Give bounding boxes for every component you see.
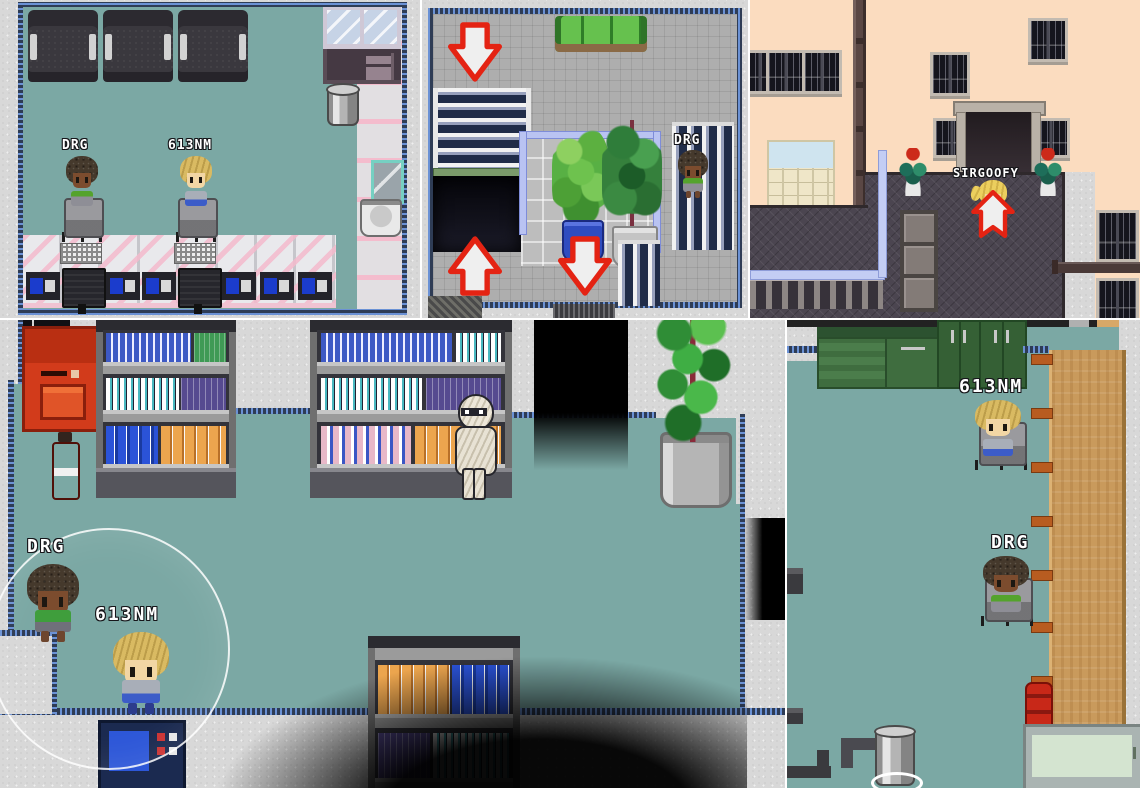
character-613nm[interactable] xyxy=(112,632,170,714)
window xyxy=(1096,278,1139,318)
trash-can-rim xyxy=(871,772,923,788)
green-couch xyxy=(555,16,647,52)
mummy-eye-band xyxy=(461,408,487,416)
flower-planter xyxy=(1031,148,1065,196)
torso xyxy=(983,439,1013,456)
wall-block xyxy=(236,320,310,414)
wall-pipe xyxy=(787,708,803,724)
monitor xyxy=(178,268,222,308)
shelf-row xyxy=(103,330,229,362)
potted-plant-leaves xyxy=(602,120,662,232)
arrow-up-icon[interactable] xyxy=(448,236,502,296)
wall-trim xyxy=(787,346,817,353)
character-label: 613NM xyxy=(959,376,1023,397)
character-label: DRG xyxy=(674,133,700,148)
window xyxy=(1096,210,1139,262)
keyboard xyxy=(174,243,216,264)
face xyxy=(187,173,204,188)
mirror xyxy=(371,160,404,204)
character-label: DRG xyxy=(27,536,66,557)
leg xyxy=(57,631,65,642)
character-drg[interactable] xyxy=(678,150,708,198)
crate xyxy=(900,274,938,312)
face xyxy=(994,575,1019,592)
shelf-row xyxy=(317,330,505,362)
glass-cabinet-pane xyxy=(364,10,397,44)
darkness-gradient xyxy=(200,650,747,788)
cabinet-drawers xyxy=(817,337,889,389)
pipe-elbow xyxy=(841,738,853,768)
desk-drawers xyxy=(366,53,394,80)
control-panel[interactable] xyxy=(26,272,60,300)
monitor xyxy=(62,268,106,308)
extinguisher-nozzle xyxy=(58,432,72,442)
arrow-down-icon[interactable] xyxy=(558,236,612,296)
panel-building-exterior: SIRGOOFY xyxy=(750,0,1140,318)
arrow-down-icon[interactable] xyxy=(448,22,502,82)
monitor-stand xyxy=(78,304,86,314)
folding-doors xyxy=(767,140,835,210)
wall-trim xyxy=(1023,346,1049,353)
character-label: DRG xyxy=(991,532,1030,553)
window xyxy=(1028,18,1068,62)
leg xyxy=(695,191,700,198)
sink xyxy=(360,199,402,237)
monitor-stand xyxy=(194,304,202,314)
panel-stair-hall: DRG xyxy=(422,0,748,318)
shelf-row xyxy=(103,374,229,410)
stone-column xyxy=(1062,172,1095,318)
character-label: DRG xyxy=(62,138,88,153)
dark-doorway[interactable] xyxy=(534,320,628,470)
panel-kitchen-office: 613NM DRG xyxy=(787,320,1140,788)
pipe-rail xyxy=(750,270,885,280)
pipe-cap xyxy=(1052,260,1058,274)
shelf-base xyxy=(96,468,236,498)
table-rung xyxy=(1031,408,1053,419)
table-rung xyxy=(1031,516,1053,527)
torso xyxy=(35,610,71,632)
control-panel[interactable] xyxy=(298,272,332,300)
pipe-rail xyxy=(878,150,887,278)
walkway-railing xyxy=(750,278,883,309)
panel-dark-store: DRG 613NM xyxy=(0,320,785,788)
sofa xyxy=(178,10,248,82)
character-label: SIRGOOFY xyxy=(953,166,1019,180)
window xyxy=(930,52,970,96)
entrance-doorway[interactable] xyxy=(964,112,1031,174)
table-rung xyxy=(1031,622,1053,633)
mummy-leg xyxy=(473,468,486,500)
leg xyxy=(145,703,154,714)
character-mummy[interactable] xyxy=(452,394,496,500)
face xyxy=(73,173,90,188)
sofa xyxy=(28,10,98,82)
railing xyxy=(519,131,527,235)
vending-door xyxy=(40,384,86,420)
control-panel[interactable] xyxy=(106,272,140,300)
counter-appliance[interactable] xyxy=(1023,724,1140,788)
table-rung xyxy=(1031,570,1053,581)
potted-plant-leaves xyxy=(648,320,736,442)
wooden-table xyxy=(1049,350,1126,772)
character-label: 613NM xyxy=(168,138,212,153)
character-613nm[interactable] xyxy=(975,400,1021,456)
window xyxy=(766,50,806,94)
torso xyxy=(71,191,92,206)
sofa xyxy=(103,10,173,82)
character-drg[interactable] xyxy=(66,156,98,206)
staircase[interactable] xyxy=(618,240,660,306)
control-panel[interactable] xyxy=(260,272,294,300)
character-label: 613NM xyxy=(95,604,159,625)
table-rung xyxy=(1031,354,1053,365)
torso xyxy=(991,595,1021,612)
pipe-bar xyxy=(1055,262,1140,273)
fire-extinguisher xyxy=(52,442,80,500)
panel-computer-room: DRG 613NM xyxy=(0,0,420,318)
character-drg[interactable] xyxy=(26,564,80,642)
leg xyxy=(128,703,137,714)
wall-corner xyxy=(787,327,817,361)
keyboard xyxy=(60,243,102,264)
shelf-row xyxy=(103,422,229,464)
bottom-platform xyxy=(553,304,615,318)
torso xyxy=(683,178,703,191)
cabinet-door[interactable] xyxy=(885,337,941,389)
wall-trim xyxy=(236,408,310,414)
wall-pipe xyxy=(787,568,803,594)
leg xyxy=(686,191,691,198)
torso xyxy=(185,191,206,206)
window xyxy=(802,50,842,94)
dark-exit[interactable] xyxy=(744,518,785,620)
leg xyxy=(41,631,49,642)
character-613nm[interactable] xyxy=(180,156,212,206)
top-wall-block xyxy=(1069,320,1089,327)
bookshelf[interactable] xyxy=(96,320,236,498)
glass-cabinet-pane xyxy=(327,10,360,44)
staircase-down[interactable] xyxy=(433,88,531,172)
face xyxy=(986,419,1011,436)
flower-planter xyxy=(896,148,930,196)
floor-pipe xyxy=(817,750,829,778)
plant-pot xyxy=(660,432,732,508)
trash-can xyxy=(327,86,359,126)
fire-hydrant xyxy=(1025,682,1053,726)
hatched-corner xyxy=(428,296,482,318)
torso xyxy=(122,680,160,703)
game-screenshot-collage: DRG 613NM xyxy=(0,0,1140,788)
character-drg[interactable] xyxy=(983,556,1029,612)
control-panel[interactable] xyxy=(142,272,176,300)
control-panel[interactable] xyxy=(222,272,256,300)
table-rung xyxy=(1031,462,1053,473)
arrow-up-icon[interactable] xyxy=(970,190,1016,238)
